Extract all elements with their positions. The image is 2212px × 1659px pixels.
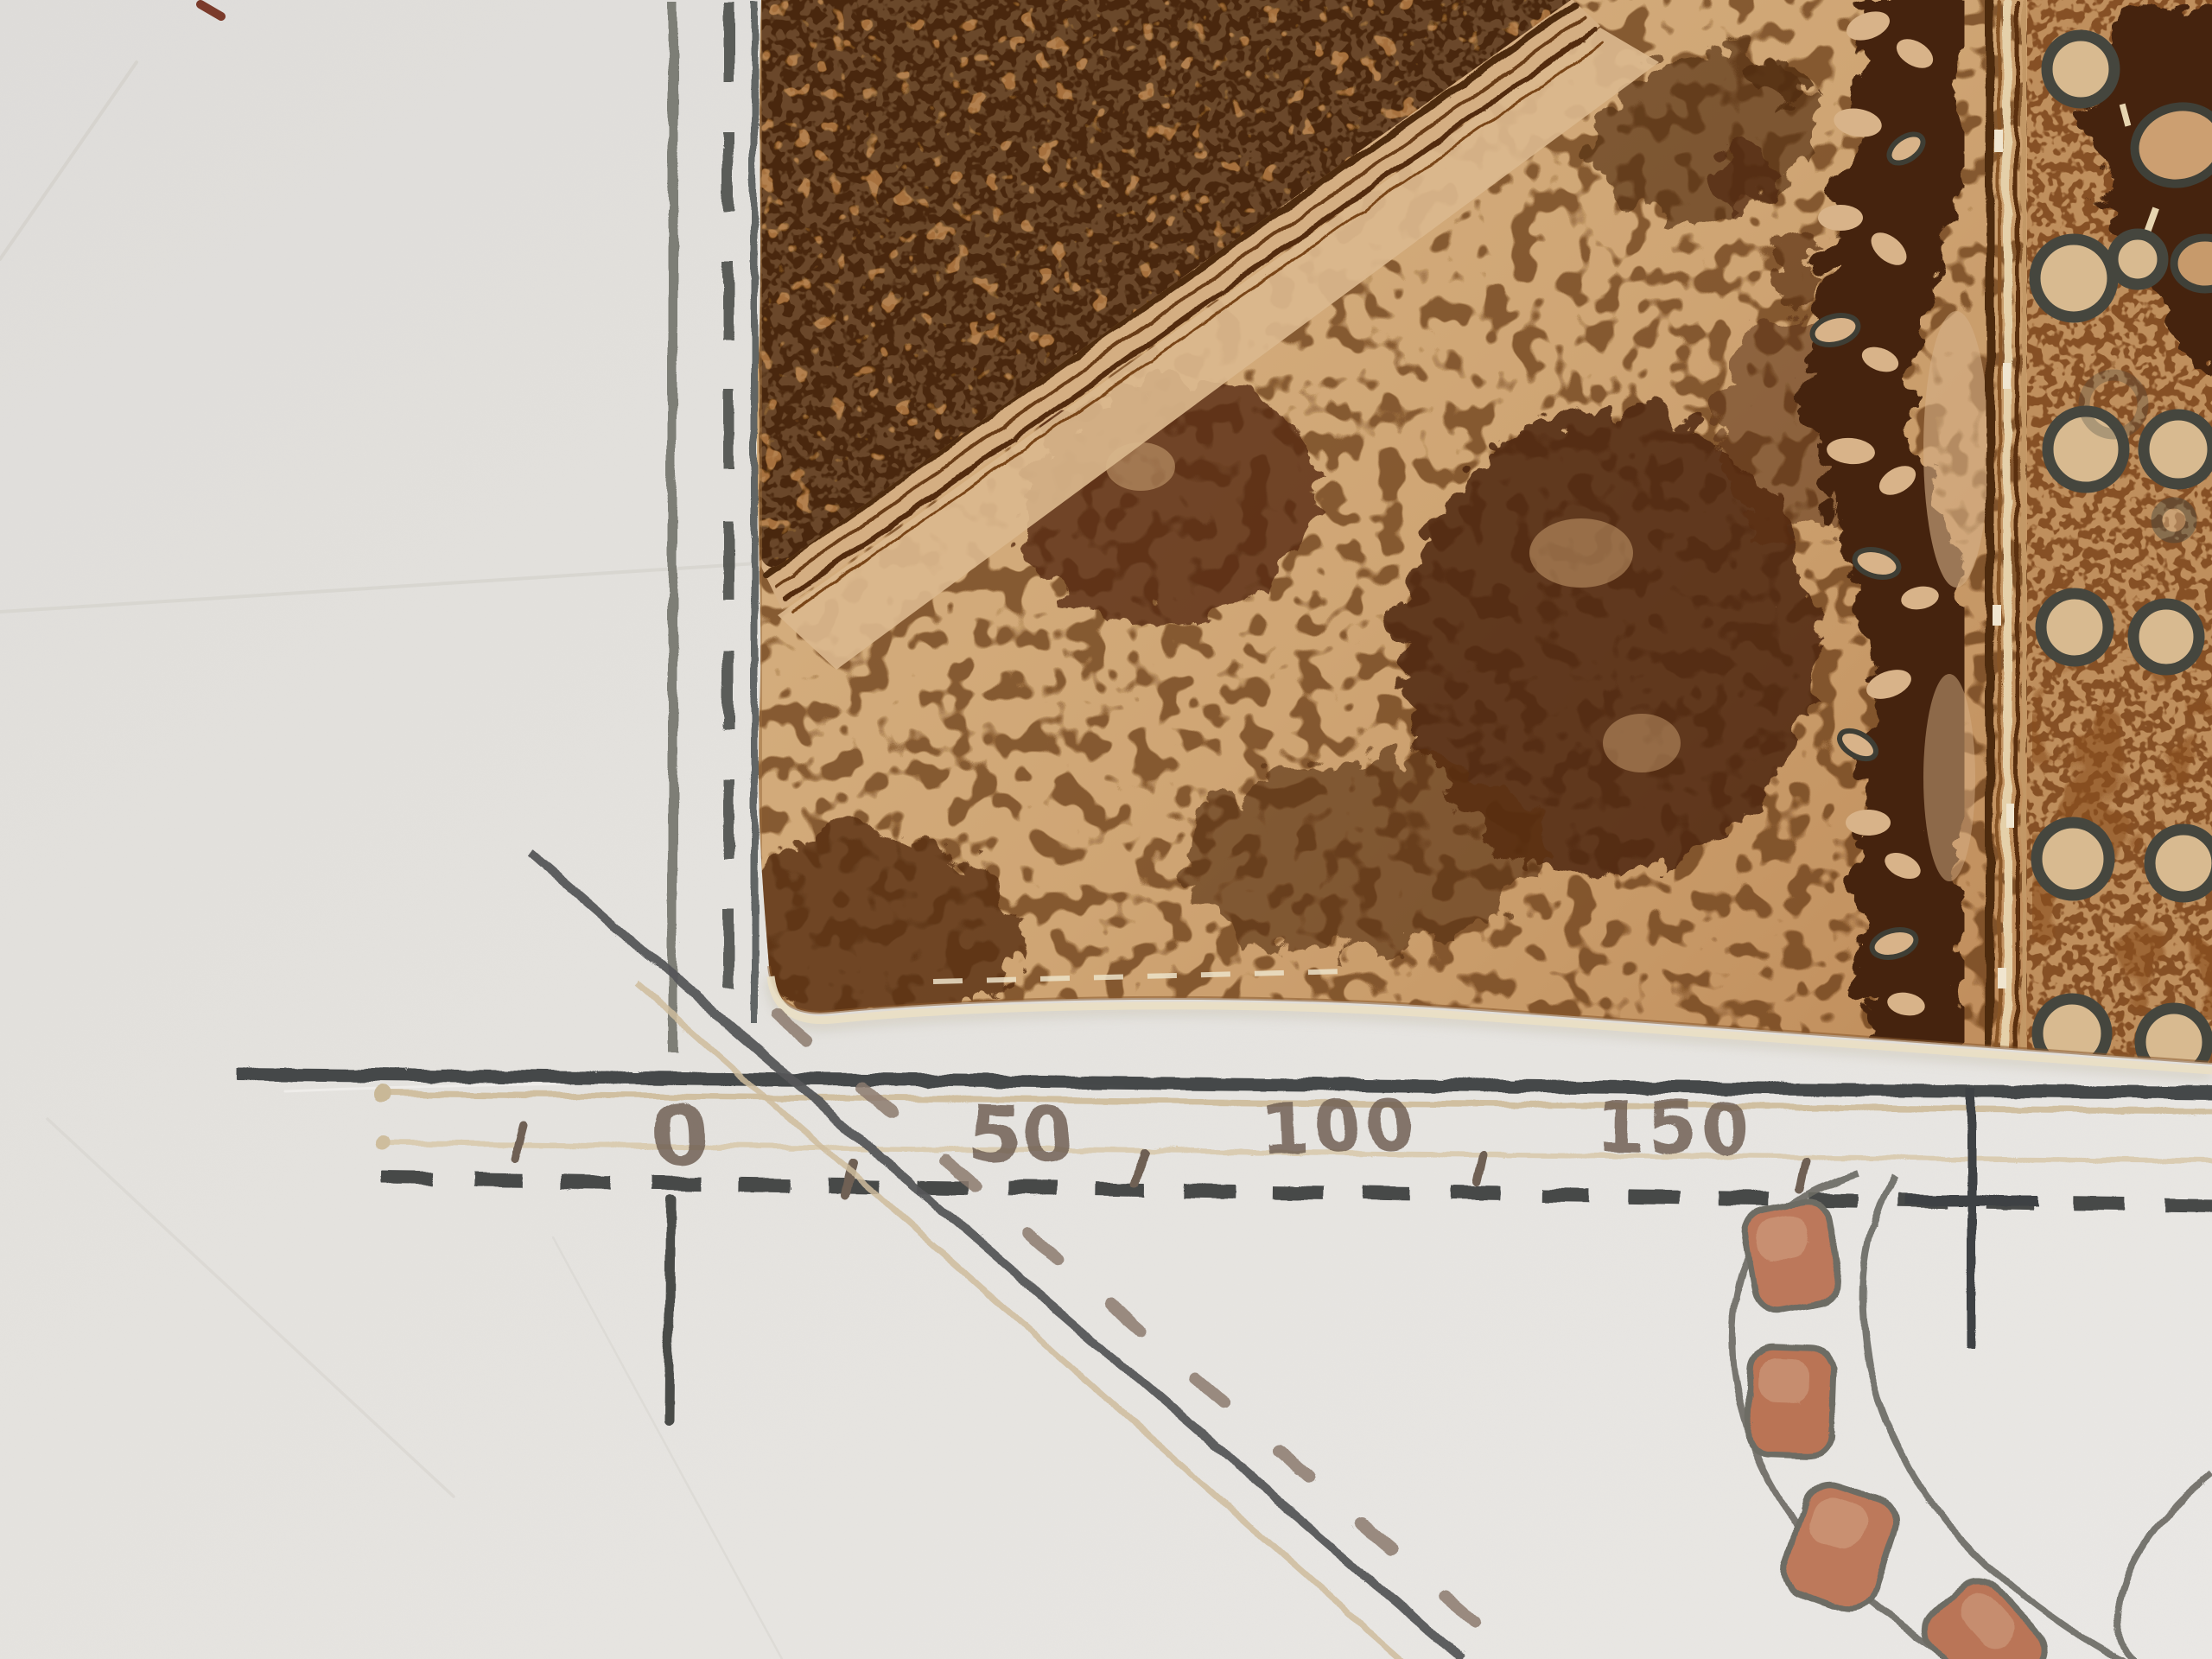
map-artwork-canvas: 0 50 100 150 — [0, 0, 2212, 1659]
artwork-photo: 0 50 100 150 — [0, 0, 2212, 1659]
photo-vignette — [0, 0, 2212, 1659]
